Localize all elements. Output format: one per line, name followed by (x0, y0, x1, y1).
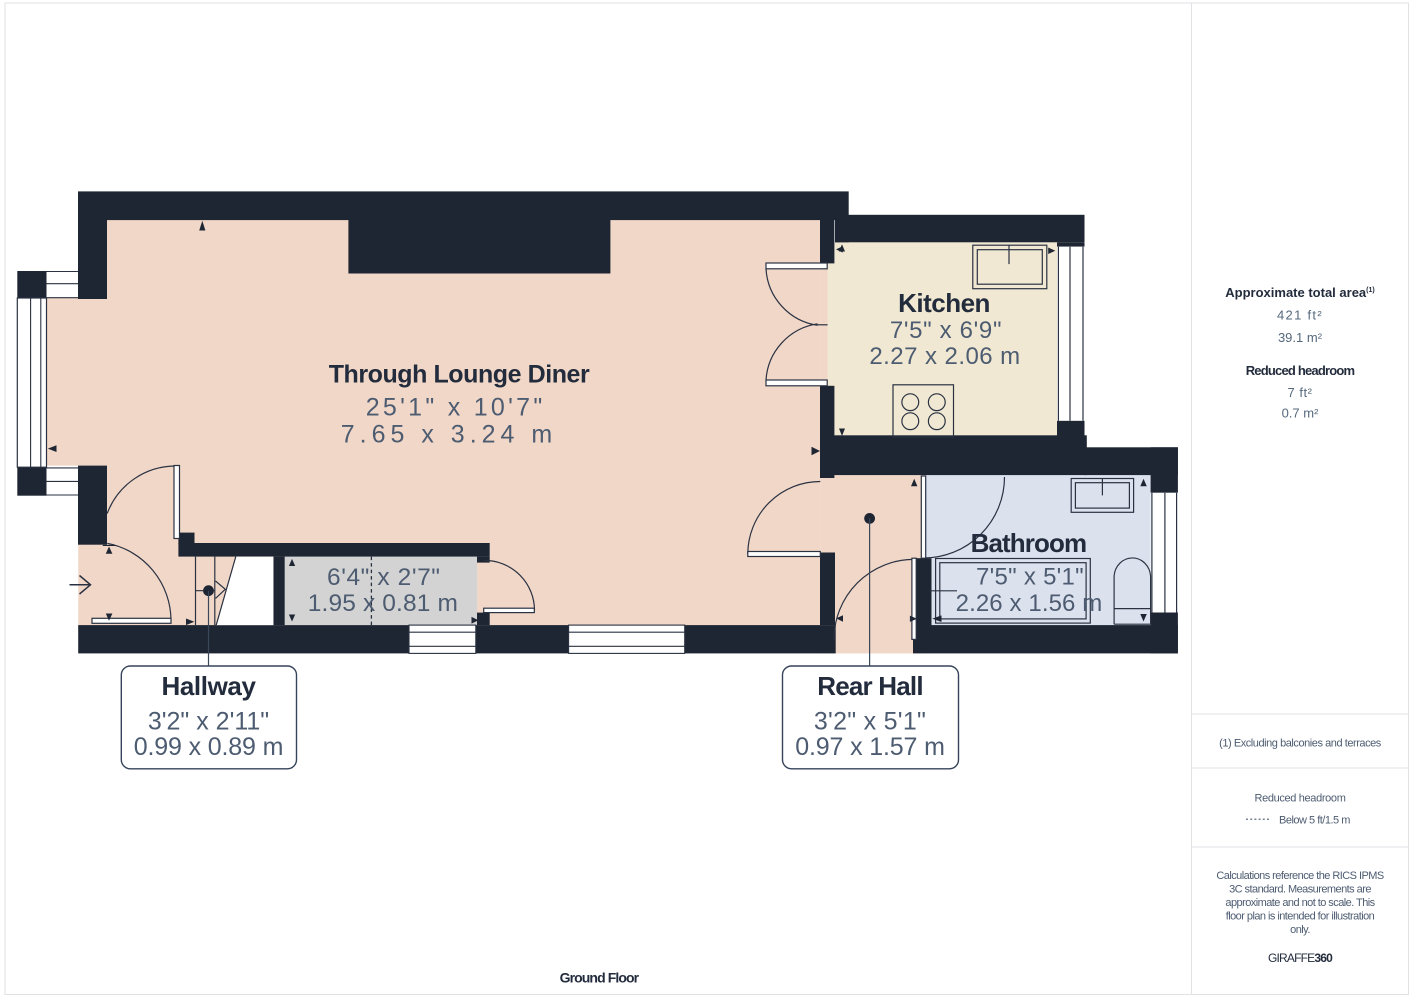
svg-text:3'2" x 5'1": 3'2" x 5'1" (814, 708, 926, 736)
svg-text:421 ft²: 421 ft² (1277, 307, 1323, 322)
svg-text:3C standard. Measurements are: 3C standard. Measurements are (1229, 884, 1371, 896)
svg-text:0.97 x 1.57 m: 0.97 x 1.57 m (795, 733, 945, 761)
svg-text:Reduced headroom: Reduced headroom (1246, 363, 1355, 378)
svg-text:7'5" x 6'9": 7'5" x 6'9" (890, 317, 1002, 344)
svg-text:Below 5 ft/1.5 m: Below 5 ft/1.5 m (1279, 815, 1350, 827)
svg-text:(1) Excluding balconies and te: (1) Excluding balconies and terraces (1219, 738, 1382, 750)
svg-text:0.99 x 0.89 m: 0.99 x 0.89 m (134, 733, 284, 761)
svg-text:Rear Hall: Rear Hall (817, 671, 923, 701)
svg-text:Through Lounge Diner: Through Lounge Diner (329, 361, 590, 389)
svg-text:2.27 x 2.06 m: 2.27 x 2.06 m (869, 343, 1020, 370)
svg-text:Approximate total area(1): Approximate total area(1) (1225, 285, 1374, 300)
svg-text:6'4" x 2'7": 6'4" x 2'7" (327, 564, 441, 591)
svg-text:floor plan is intended for ill: floor plan is intended for illustration (1226, 911, 1375, 923)
svg-text:7.65 x 3.24 m: 7.65 x 3.24 m (341, 421, 557, 449)
svg-text:7'5" x 5'1": 7'5" x 5'1" (976, 563, 1084, 590)
svg-text:Reduced headroom: Reduced headroom (1254, 793, 1345, 805)
svg-text:Calculations reference the RIC: Calculations reference the RICS IPMS (1216, 870, 1383, 882)
svg-text:Kitchen: Kitchen (898, 288, 990, 318)
svg-text:3'2" x 2'11": 3'2" x 2'11" (148, 708, 269, 736)
svg-text:only.: only. (1290, 924, 1310, 936)
svg-text:Hallway: Hallway (161, 671, 256, 701)
svg-text:approximate and not to scale.: approximate and not to scale. This (1225, 897, 1375, 909)
svg-text:25'1" x 10'7": 25'1" x 10'7" (366, 393, 546, 421)
svg-text:Ground Floor: Ground Floor (560, 969, 640, 985)
svg-text:0.7 m²: 0.7 m² (1282, 405, 1320, 420)
svg-text:7 ft²: 7 ft² (1288, 385, 1313, 400)
svg-text:GIRAFFE360: GIRAFFE360 (1268, 951, 1333, 965)
svg-text:Bathroom: Bathroom (971, 528, 1087, 558)
svg-text:2.26 x 1.56 m: 2.26 x 1.56 m (956, 590, 1103, 617)
svg-text:39.1 m²: 39.1 m² (1278, 330, 1323, 345)
svg-text:1.95 x 0.81 m: 1.95 x 0.81 m (308, 590, 458, 617)
